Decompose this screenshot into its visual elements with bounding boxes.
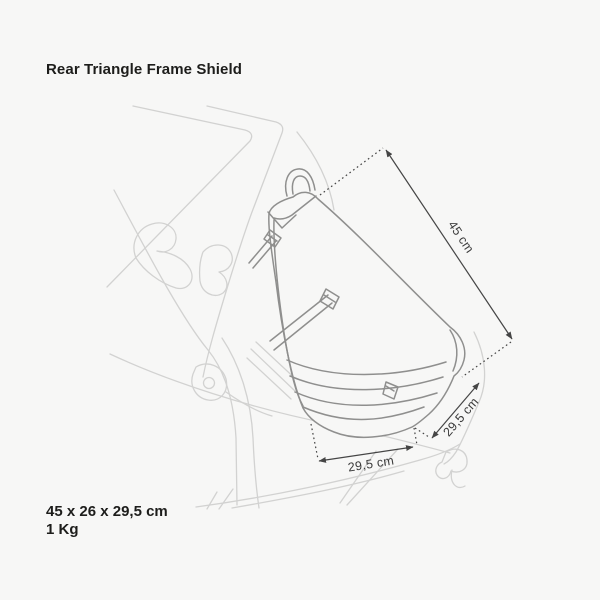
extension-line <box>311 424 318 459</box>
extension-line <box>462 342 511 377</box>
extension-line <box>320 148 383 195</box>
dimension-label-length: 45 cm <box>445 218 476 255</box>
product-specs: 45 x 26 x 29,5 cm 1 Kg <box>46 503 168 539</box>
dimension-label-width: 29,5 cm <box>347 453 395 474</box>
bag-hook <box>286 169 315 196</box>
extension-line <box>415 428 429 437</box>
extension-line <box>414 428 417 445</box>
spec-weight: 1 Kg <box>46 521 168 539</box>
dimension-label-depth: 29,5 cm <box>440 395 481 439</box>
shield-bag-drawing <box>249 169 465 437</box>
spec-dimensions: 45 x 26 x 29,5 cm <box>46 503 168 521</box>
product-diagram-page: Rear Triangle Frame Shield <box>0 0 600 600</box>
bag-outline <box>269 192 465 437</box>
